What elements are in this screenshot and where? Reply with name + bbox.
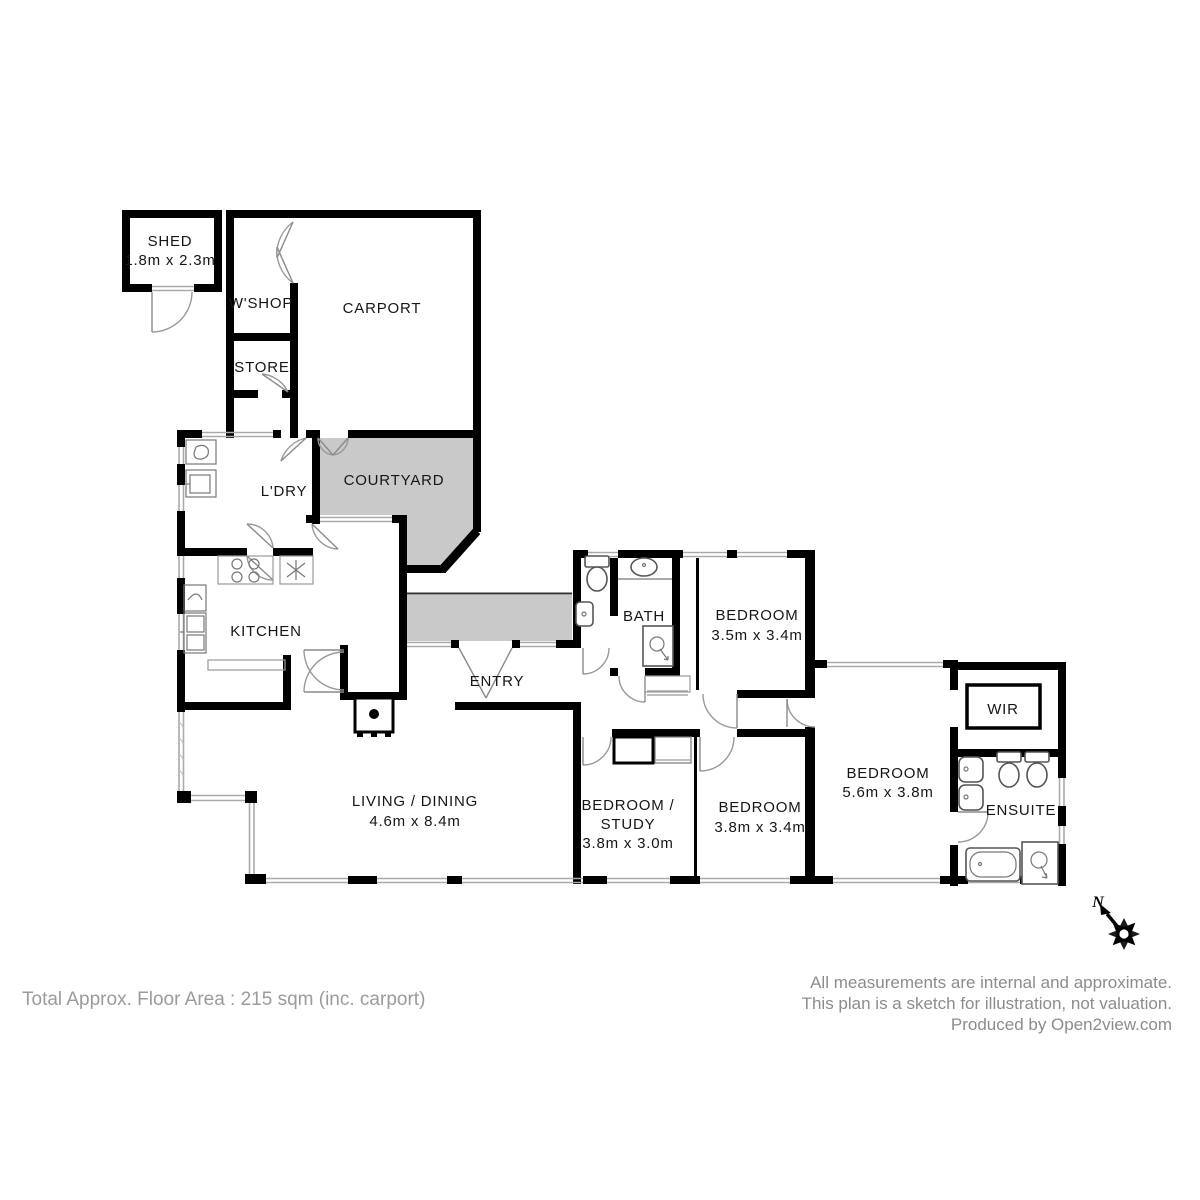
- door-laundry-top: [281, 438, 306, 461]
- room-label-workshop: W'SHOP: [229, 295, 293, 312]
- ensuite-toilet-1: [997, 752, 1021, 787]
- room-labels: SHED 1.8m x 2.3m W'SHOP CARPORT STORE L'…: [124, 233, 1056, 852]
- ensuite-toilet-2: [1025, 752, 1049, 787]
- door-laundry-kitchen: [247, 524, 273, 580]
- courtyard-area: [318, 438, 477, 567]
- cooktop-icon: [218, 556, 273, 584]
- ensuite-basin-1: [959, 757, 983, 782]
- door-store: [262, 374, 288, 392]
- compass-north-label: N: [1091, 894, 1105, 911]
- laundry-trough-icon: [186, 440, 216, 464]
- room-label-wir: WIR: [987, 701, 1019, 718]
- door-master: [787, 699, 815, 727]
- door-shed: [152, 292, 192, 332]
- door-laundry-hall: [312, 524, 338, 549]
- door-bedroom1: [703, 694, 737, 728]
- room-label-carport: CARPORT: [343, 300, 422, 317]
- room-label-living-dining: LIVING / DINING: [352, 793, 478, 810]
- room-label-courtyard: COURTYARD: [344, 472, 445, 489]
- bathtub-icon: [966, 848, 1020, 881]
- wood-heater-icon: [355, 698, 393, 737]
- room-label-entry: ENTRY: [470, 673, 525, 690]
- shower-icon: [643, 626, 673, 666]
- bath-basin-icon: [618, 558, 672, 579]
- room-dims-bedroom2: 3.8m x 3.4m: [714, 819, 805, 836]
- room-label-ensuite: ENSUITE: [986, 802, 1057, 819]
- total-area-text: Total Approx. Floor Area : 215 sqm (inc.…: [22, 989, 425, 1010]
- room-dims-bedroom1: 3.5m x 3.4m: [711, 627, 802, 644]
- wc-basin-icon: [576, 602, 593, 626]
- door-bedroom-study: [583, 737, 611, 765]
- door-dining-double: [304, 650, 344, 692]
- room-label-bedroom-study-1: BEDROOM /: [581, 797, 674, 814]
- door-ensuite: [958, 812, 988, 842]
- hall-closet-2: [655, 737, 691, 763]
- room-label-master-bedroom: BEDROOM: [846, 765, 929, 782]
- ensuite-shower-icon: [1022, 842, 1058, 884]
- disclaimer-line-1: All measurements are internal and approx…: [810, 973, 1172, 992]
- room-label-store: STORE: [234, 359, 289, 376]
- room-dims-shed: 1.8m x 2.3m: [124, 252, 215, 269]
- dishwasher-icon: [184, 585, 206, 611]
- door-bath: [619, 676, 645, 702]
- floor-plan-canvas: SHED 1.8m x 2.3m W'SHOP CARPORT STORE L'…: [0, 0, 1200, 1200]
- room-label-bedroom-study-2: STUDY: [601, 816, 656, 833]
- room-dims-bedroom-study: 3.8m x 3.0m: [582, 835, 673, 852]
- room-label-bedroom1: BEDROOM: [715, 607, 798, 624]
- compass-icon: N: [1091, 894, 1140, 950]
- disclaimer-line-2: This plan is a sketch for illustration, …: [802, 994, 1172, 1013]
- room-label-bedroom2: BEDROOM: [718, 799, 801, 816]
- floor-plan-page: SHED 1.8m x 2.3m W'SHOP CARPORT STORE L'…: [0, 0, 1200, 1200]
- footer: Total Approx. Floor Area : 215 sqm (inc.…: [22, 973, 1172, 1034]
- room-label-kitchen: KITCHEN: [230, 623, 301, 640]
- room-dims-master-bedroom: 5.6m x 3.8m: [842, 784, 933, 801]
- linen-closet: [645, 676, 690, 692]
- room-label-bath: BATH: [623, 608, 665, 625]
- rangehood-fan-icon: [280, 556, 313, 584]
- porch-area: [405, 595, 572, 641]
- outdoor-areas: [318, 438, 572, 641]
- doors: [152, 222, 988, 842]
- door-workshop-double: [277, 222, 293, 283]
- room-label-shed: SHED: [148, 233, 193, 250]
- kitchen-bench: [208, 660, 285, 670]
- kitchen-sink-icon: [180, 613, 206, 653]
- room-dims-living-dining: 4.6m x 8.4m: [369, 813, 460, 830]
- laundry-tub-icon: [186, 470, 216, 497]
- ensuite-basin-2: [959, 785, 983, 810]
- hall-closet-1: [614, 737, 653, 763]
- room-label-laundry: L'DRY: [261, 483, 308, 500]
- door-bedroom2: [700, 737, 734, 771]
- door-wc: [583, 648, 609, 674]
- disclaimer-line-3: Produced by Open2view.com: [951, 1015, 1172, 1034]
- toilet-icon: [585, 556, 609, 591]
